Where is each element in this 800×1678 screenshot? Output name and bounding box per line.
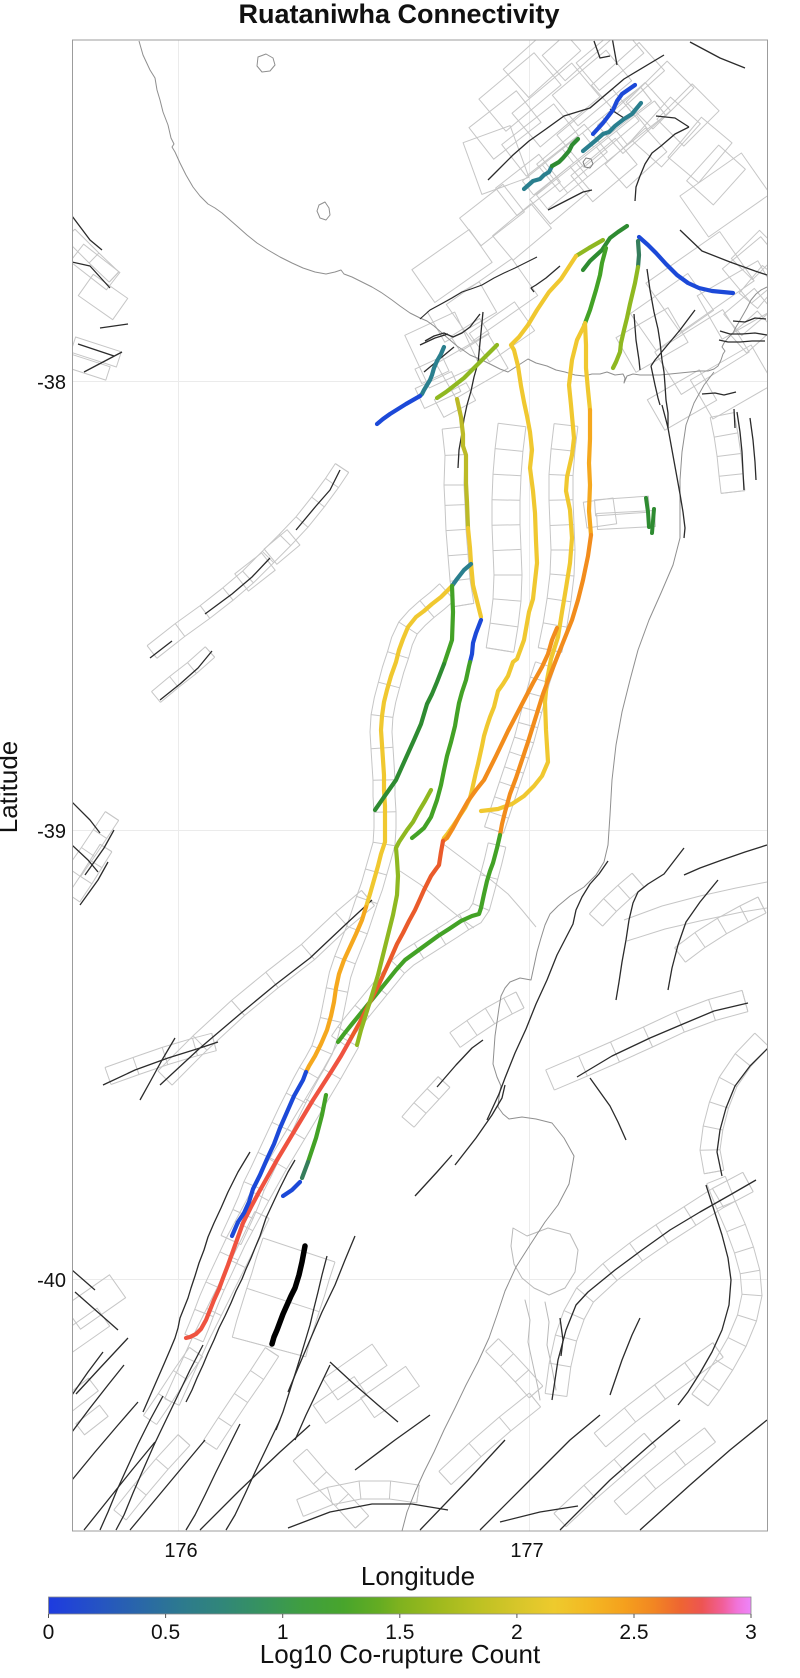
svg-text:177: 177 [510,1540,543,1562]
svg-text:3: 3 [745,1621,757,1644]
svg-text:Ruataniwha Connectivity: Ruataniwha Connectivity [238,0,559,29]
svg-text:Latitude: Latitude [0,741,23,834]
svg-text:176: 176 [164,1540,197,1562]
svg-text:-39: -39 [37,821,66,843]
svg-text:2.5: 2.5 [619,1621,648,1644]
svg-text:Log10 Co-rupture Count: Log10 Co-rupture Count [260,1639,541,1669]
svg-text:0: 0 [43,1621,55,1644]
svg-text:-38: -38 [37,372,66,394]
svg-text:-40: -40 [37,1270,66,1292]
svg-text:0.5: 0.5 [151,1621,180,1644]
svg-text:Longitude: Longitude [361,1561,475,1591]
